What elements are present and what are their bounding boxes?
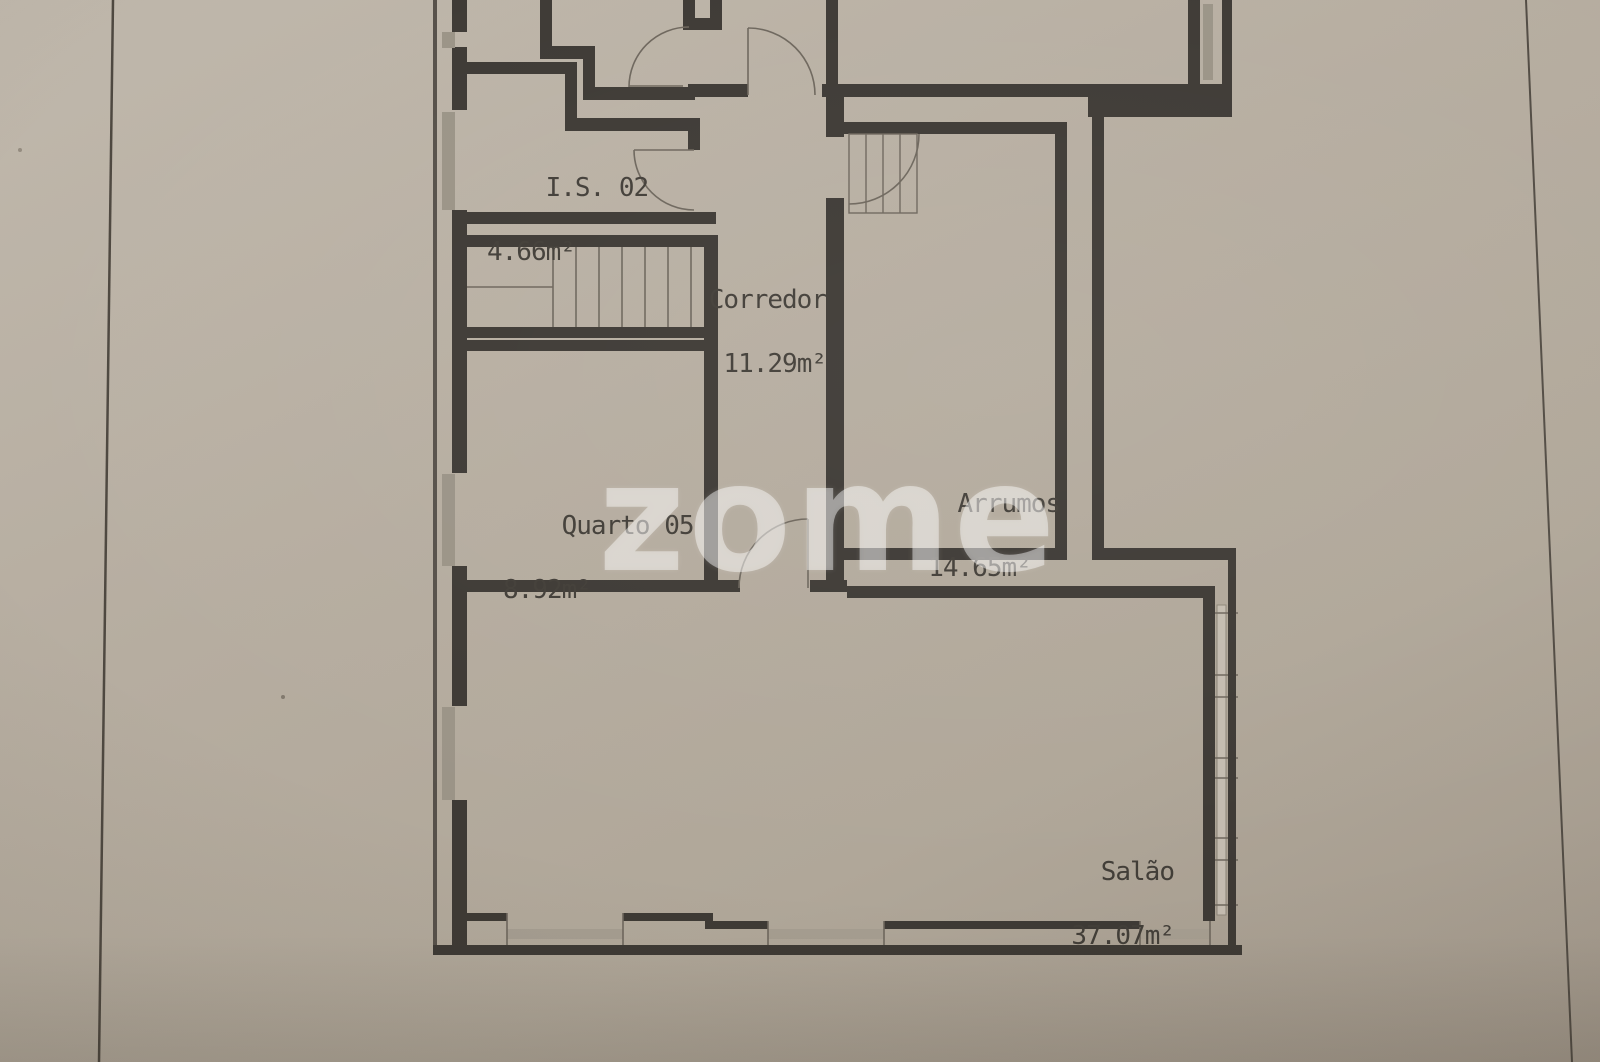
window-glazing xyxy=(442,707,455,800)
wall xyxy=(452,47,467,110)
room-area: 11.29m² xyxy=(650,348,826,380)
window-glazing xyxy=(768,929,884,939)
paper-speck xyxy=(18,148,22,152)
wall xyxy=(688,84,748,97)
wall xyxy=(433,0,437,950)
wall xyxy=(623,913,713,921)
wall xyxy=(822,84,1088,97)
wall xyxy=(455,62,577,74)
wall xyxy=(826,0,838,84)
wall xyxy=(452,0,467,32)
door-arc xyxy=(748,28,815,95)
wall xyxy=(838,122,1067,134)
room-area: 4.66m² xyxy=(487,236,648,268)
wall xyxy=(1188,0,1200,84)
wall xyxy=(452,800,467,950)
wall xyxy=(688,118,700,150)
wall xyxy=(1092,117,1104,548)
wall xyxy=(565,118,700,131)
floor-plan-photo: I.S. 02 4.66m² Corredor 11.29m² Quarto 0… xyxy=(0,0,1600,1062)
window-glazing xyxy=(442,112,455,210)
door-arc xyxy=(629,27,689,87)
room-name: I.S. 02 xyxy=(546,173,649,203)
room-area: 37.07m² xyxy=(1042,920,1174,952)
window-glazing xyxy=(442,474,455,566)
wall xyxy=(1203,586,1215,921)
room-label-corredor: Corredor 11.29m² xyxy=(650,252,826,444)
watermark-text: zome xyxy=(598,444,1058,594)
window-glazing xyxy=(442,32,455,48)
wall xyxy=(710,0,722,30)
wall xyxy=(713,921,768,929)
door-arc xyxy=(849,134,919,204)
paper-speck xyxy=(281,695,285,699)
room-name: Corredor xyxy=(709,285,826,315)
wall xyxy=(705,913,713,929)
wall xyxy=(467,913,507,921)
window-glazing xyxy=(507,929,623,939)
wall xyxy=(540,0,552,52)
wall xyxy=(1088,84,1232,117)
window-glazing xyxy=(1203,4,1213,80)
sheet-edge-line-right xyxy=(1526,0,1572,1062)
wall xyxy=(1092,548,1236,560)
room-label-salao: Salão 37.07m² xyxy=(1042,824,1174,1016)
room-label-is02: I.S. 02 4.66m² xyxy=(487,140,648,332)
sheet-edge-line-left xyxy=(99,0,113,1062)
wall xyxy=(1228,556,1236,955)
room-name: Salão xyxy=(1101,857,1174,887)
wall xyxy=(583,87,695,100)
window-glazing xyxy=(1217,605,1226,915)
